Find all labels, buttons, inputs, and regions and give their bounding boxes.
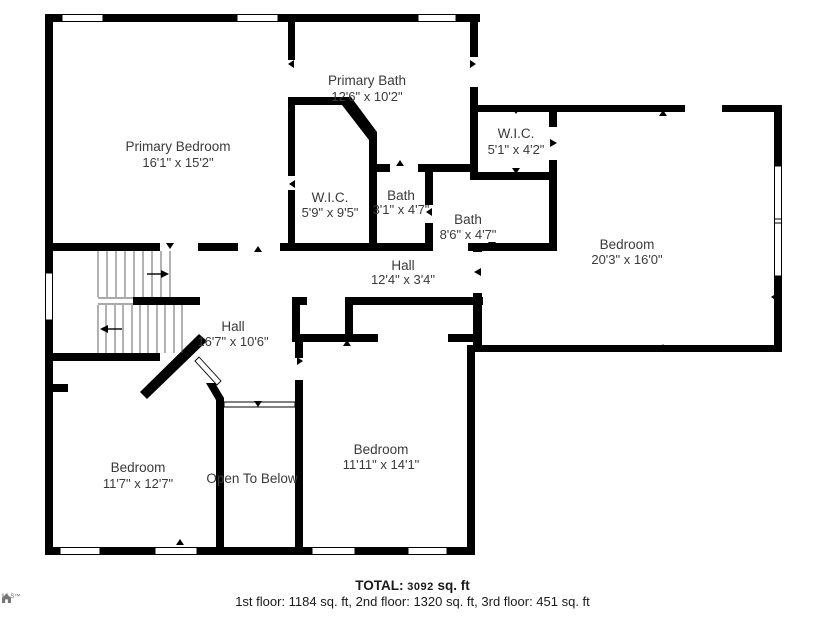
room-label-wic-small: W.I.C. [498,126,535,141]
room-label-bedroom-bottom-left: Bedroom [111,460,166,475]
room-label-primary-bath: Primary Bath [328,73,406,88]
window [60,548,100,555]
room-dims-hall-main: 16'7" x 10'6" [197,334,269,349]
room-dims-bath-small: 3'1" x 4'7" [373,202,430,217]
floor-breakdown-line: 1st floor: 1184 sq. ft, 2nd floor: 1320 … [0,594,825,609]
window [237,15,278,22]
window [62,15,103,22]
room-dims-bedroom-right: 20'3" x 16'0" [591,252,663,267]
room-label-hall-small: Hall [391,258,414,273]
room-dims-hall-small: 12'4" x 3'4" [371,272,435,287]
total-label: TOTAL: [355,578,403,593]
floor-plan-page: Primary Bedroom 16'1" x 15'2" Primary Ba… [0,0,825,619]
total-value: 3092 [407,581,433,593]
room-label-primary-bedroom: Primary Bedroom [125,139,230,154]
stair-direction-arrow-down [100,325,122,333]
window [408,548,447,555]
window [418,15,456,22]
room-label-bath-small: Bath [387,188,415,203]
angled-door-leaf [195,357,221,385]
room-labels: Primary Bedroom 16'1" x 15'2" Primary Ba… [103,73,663,491]
room-dims-bath-main: 8'6" x 4'7" [440,227,497,242]
window [46,273,53,320]
room-dims-primary-bedroom: 16'1" x 15'2" [142,155,214,170]
mls-logo: MLS™ [2,594,20,600]
room-dims-bedroom-bottom-middle: 11'11" x 14'1" [343,457,420,472]
room-label-hall-main: Hall [221,319,244,334]
room-dims-bedroom-bottom-left: 11'7" x 12'7" [103,476,174,491]
room-label-bedroom-bottom-middle: Bedroom [354,442,409,457]
total-unit: sq. ft [438,578,470,593]
window [312,548,355,555]
house-icon [2,594,11,603]
room-label-wic-primary: W.I.C. [312,190,349,205]
room-label-open-to-below: Open To Below [206,471,298,486]
room-dims-wic-primary: 5'9" x 9'5" [302,205,359,220]
window [155,548,197,555]
area-summary: TOTAL: 3092 sq. ft 1st floor: 1184 sq. f… [0,579,825,609]
floor-plan-svg: Primary Bedroom 16'1" x 15'2" Primary Ba… [0,0,825,619]
stair-direction-arrow-up [147,270,169,278]
total-area-line: TOTAL: 3092 sq. ft [0,579,825,594]
room-label-bath-main: Bath [454,212,482,227]
window [775,166,782,276]
room-dims-wic-small: 5'1" x 4'2" [488,142,545,157]
room-dims-primary-bath: 12'6" x 10'2" [331,89,403,104]
room-label-bedroom-right: Bedroom [600,237,655,252]
